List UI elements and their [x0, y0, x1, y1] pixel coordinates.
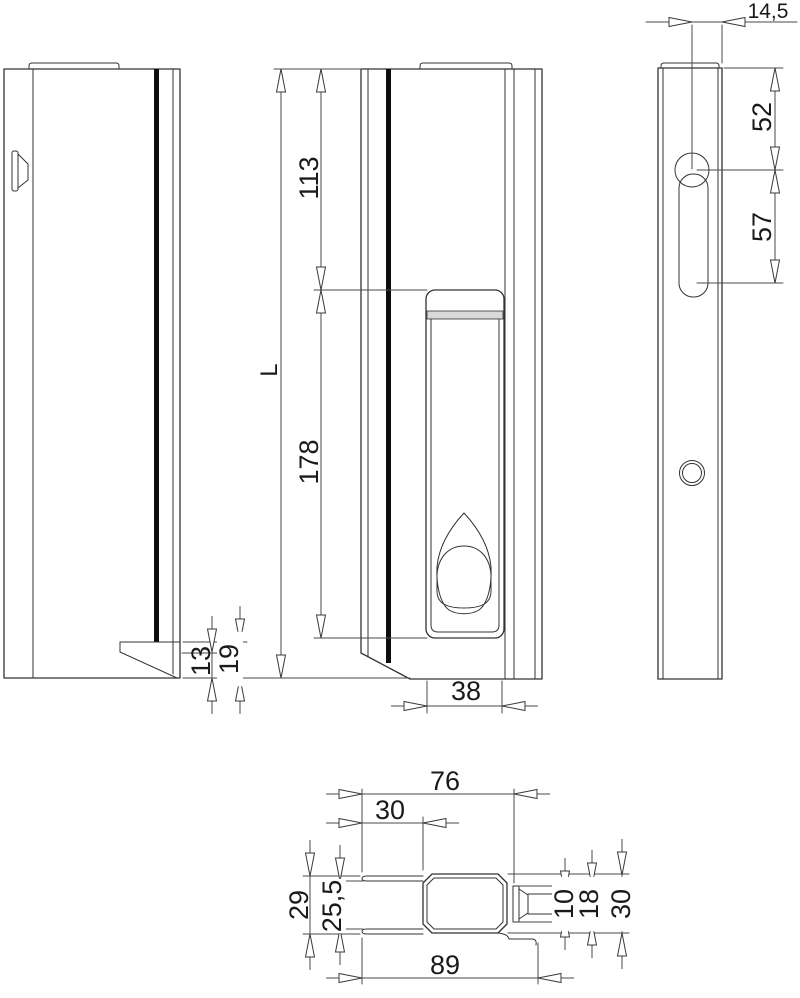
- dimension-arrow: [771, 147, 780, 170]
- dim-label-d178: 178: [294, 439, 324, 484]
- dimension-arrow: [306, 853, 315, 876]
- channel-wall-top: [362, 876, 423, 881]
- dim-label-d38: 38: [451, 676, 481, 706]
- dim-label-d52: 52: [747, 102, 777, 132]
- handle-section-outer: [423, 874, 507, 933]
- dimension-arrow: [339, 974, 362, 983]
- dimension-arrow: [336, 858, 345, 881]
- dimension-arrow: [771, 170, 780, 193]
- slot-cutout: [679, 174, 708, 297]
- dim-label-L: L: [256, 363, 283, 376]
- technical-drawing-canvas: L11317838131914,552577630892925,5101830: [0, 0, 800, 998]
- pin-flange: [513, 886, 519, 922]
- dimension-arrow: [618, 933, 627, 956]
- dimension-arrow: [317, 69, 326, 92]
- dim-label-d29: 29: [284, 890, 314, 920]
- top-end-cap: [661, 63, 719, 68]
- dim-label-d89: 89: [430, 950, 460, 980]
- dim-label-d30_right: 30: [606, 889, 636, 919]
- side-clip-tab: [12, 151, 18, 191]
- dimension-arrow: [514, 790, 537, 799]
- dimensions-layer: L11317838131914,552577630892925,5101830: [186, 0, 788, 983]
- gasket-stripe: [154, 69, 159, 642]
- dim-label-d30_top: 30: [375, 795, 405, 825]
- dimension-arrow: [317, 615, 326, 638]
- dim-label-d14_5: 14,5: [748, 0, 789, 23]
- extension-lines: [182, 22, 797, 984]
- dimension-arrow: [669, 18, 692, 27]
- dimension-arrow: [423, 819, 446, 828]
- dimension-arrow: [339, 790, 362, 799]
- profile-edge-lines: [663, 68, 718, 679]
- dimension-arrow: [618, 852, 627, 875]
- pin-cone: [519, 889, 528, 919]
- handle-section-inner: [427, 878, 503, 929]
- dimension-arrow: [771, 260, 780, 283]
- dim-label-d113: 113: [294, 156, 324, 199]
- dimension-arrow: [317, 290, 326, 313]
- bottom-section-view: [362, 874, 557, 945]
- dimension-arrow: [208, 678, 217, 701]
- dim-label-d19: 19: [214, 644, 244, 674]
- profile-edge-lines: [505, 69, 535, 679]
- screw-hole-outer: [680, 461, 705, 486]
- dimension-arrow: [317, 267, 326, 290]
- channel-wall-bottom: [362, 929, 423, 934]
- dim-label-d57: 57: [747, 212, 777, 242]
- top-end-cap: [420, 63, 512, 69]
- thumb-recess-inner: [437, 546, 491, 608]
- front-view: [361, 63, 542, 679]
- dim-label-d25_5: 25,5: [317, 880, 347, 933]
- profile-body-outline: [658, 68, 722, 679]
- dim-label-d13: 13: [186, 646, 216, 676]
- hook-lip: [498, 933, 536, 945]
- dim-label-d18: 18: [574, 889, 604, 919]
- left-side-view: [4, 63, 180, 678]
- dimension-arrow: [502, 702, 525, 711]
- dimension-arrow: [306, 934, 315, 957]
- right-side-view: [658, 63, 722, 679]
- dimension-arrow: [722, 18, 745, 27]
- dimension-arrow: [339, 819, 362, 828]
- handle-inner-edge: [431, 319, 499, 632]
- dimension-arrow: [771, 68, 780, 91]
- dim-label-d76: 76: [430, 766, 460, 796]
- technical-drawing: L11317838131914,552577630892925,5101830: [0, 0, 800, 998]
- gasket-stripe: [386, 69, 391, 663]
- handle-cap-band: [427, 311, 503, 319]
- dimension-arrow: [404, 702, 427, 711]
- foot-chamfer: [120, 642, 180, 678]
- profile-body-outline: [4, 69, 180, 678]
- side-clip-wedge: [18, 154, 28, 188]
- thumb-recess-outer: [437, 513, 491, 614]
- dimension-arrow: [277, 69, 286, 92]
- dimension-arrow: [277, 655, 286, 678]
- top-end-cap: [29, 63, 119, 69]
- screw-hole-inner: [683, 464, 702, 483]
- dimension-arrow: [538, 974, 561, 983]
